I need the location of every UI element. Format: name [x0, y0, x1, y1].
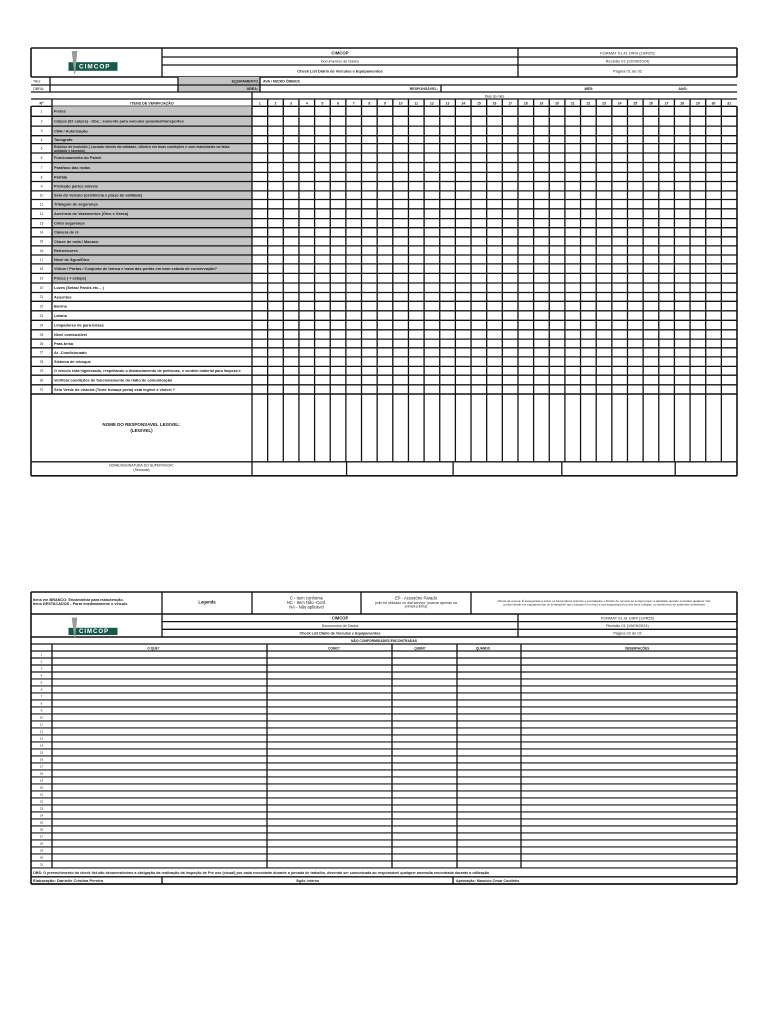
- svg-text:8: 8: [41, 702, 43, 706]
- svg-text:OBRA:: OBRA:: [33, 87, 44, 91]
- svg-text:18: 18: [40, 772, 44, 776]
- svg-text:21: 21: [571, 101, 575, 105]
- svg-text:24: 24: [40, 323, 44, 327]
- svg-text:1: 1: [41, 653, 43, 657]
- svg-text:13: 13: [40, 221, 44, 225]
- svg-text:20: 20: [40, 786, 44, 790]
- svg-text:Cinto segurança: Cinto segurança: [54, 221, 85, 226]
- svg-text:Buzina: Buzina: [54, 303, 68, 308]
- svg-text:30: 30: [712, 101, 716, 105]
- svg-text:ÁREA:: ÁREA:: [247, 86, 258, 91]
- svg-text:Documentos de Dados: Documentos de Dados: [321, 59, 360, 63]
- svg-text:15: 15: [40, 240, 44, 244]
- svg-text:4: 4: [41, 674, 43, 678]
- svg-text:Tacógrafo: Tacógrafo: [54, 137, 73, 142]
- svg-text:NA - Não aplicável: NA - Não aplicável: [289, 605, 324, 610]
- svg-text:MÊS:: MÊS:: [585, 86, 594, 91]
- svg-text:11: 11: [40, 202, 44, 206]
- svg-text:5: 5: [41, 681, 43, 685]
- svg-text:28: 28: [680, 101, 684, 105]
- svg-text:Chave de roda / Macaco: Chave de roda / Macaco: [54, 239, 99, 244]
- svg-text:CIMCOP: CIMCOP: [331, 51, 348, 56]
- svg-text:4: 4: [41, 138, 43, 142]
- svg-text:16: 16: [40, 758, 44, 762]
- svg-text:27: 27: [665, 101, 669, 105]
- svg-text:11: 11: [40, 723, 43, 727]
- svg-text:QUANDO: QUANDO: [476, 646, 491, 650]
- svg-text:ITENS DE VERIFICAÇÃO: ITENS DE VERIFICAÇÃO: [130, 100, 174, 105]
- svg-text:Sigilo: Interno: Sigilo: Interno: [296, 879, 319, 883]
- svg-text:Revisão 01 (19/09/2024): Revisão 01 (19/09/2024): [606, 623, 649, 628]
- svg-text:30: 30: [40, 378, 44, 382]
- svg-text:Para-brisa: Para-brisa: [54, 341, 74, 346]
- svg-text:28: 28: [40, 360, 44, 364]
- svg-text:Legenda: Legenda: [198, 600, 216, 605]
- svg-text:19: 19: [540, 101, 544, 105]
- svg-text:10: 10: [399, 101, 403, 105]
- svg-text:31: 31: [727, 101, 731, 105]
- svg-text:12: 12: [40, 212, 44, 216]
- svg-text:9: 9: [41, 709, 43, 713]
- svg-text:31: 31: [40, 863, 44, 867]
- svg-text:Aprovação: Mauricio Cesar Cout: Aprovação: Mauricio Cesar Coutinho: [456, 879, 520, 883]
- svg-text:AVA / MICRO ÔNIBUS: AVA / MICRO ÔNIBUS: [263, 79, 300, 84]
- svg-text:6: 6: [41, 156, 43, 160]
- svg-text:19: 19: [40, 779, 44, 783]
- svg-text:12: 12: [430, 101, 434, 105]
- svg-text:7: 7: [41, 166, 43, 170]
- svg-text:Página 01 de 02: Página 01 de 02: [613, 69, 643, 74]
- svg-text:CNH / Autorização: CNH / Autorização: [54, 128, 88, 133]
- svg-text:16: 16: [40, 249, 44, 253]
- svg-text:16: 16: [493, 101, 497, 105]
- svg-text:29: 29: [40, 369, 44, 373]
- svg-text:24: 24: [40, 814, 44, 818]
- svg-text:Nível de Água/Óleo: Nível de Água/Óleo: [54, 257, 90, 262]
- svg-text:3: 3: [41, 667, 43, 671]
- svg-text:5: 5: [321, 101, 323, 105]
- svg-text:Vidros / Portas / Conjunto de: Vidros / Portas / Conjunto de tranca e t…: [54, 266, 218, 271]
- svg-text:Nível combustível: Nível combustível: [54, 332, 87, 337]
- svg-text:7: 7: [353, 101, 355, 105]
- svg-text:13: 13: [40, 737, 44, 741]
- svg-text:25: 25: [40, 333, 44, 337]
- svg-text:20: 20: [40, 286, 44, 290]
- svg-text:2: 2: [41, 660, 43, 664]
- svg-text:Sistema de reboque: Sistema de reboque: [54, 359, 92, 364]
- svg-text:Itens DESTACADOS - Parar imedi: Itens DESTACADOS - Parar imediatamente o…: [33, 602, 128, 606]
- svg-text:15: 15: [40, 751, 44, 755]
- svg-text:8: 8: [41, 175, 43, 179]
- svg-text:Verificar condições de funcion: Verificar condições de funcionamento do …: [54, 377, 173, 382]
- svg-text:14: 14: [40, 231, 44, 235]
- svg-text:Check List Diário de Veículos: Check List Diário de Veículos e Equipame…: [300, 632, 381, 636]
- svg-text:3: 3: [41, 129, 43, 133]
- svg-text:9: 9: [41, 185, 43, 189]
- svg-text:7: 7: [41, 695, 43, 699]
- svg-text:23: 23: [40, 314, 44, 318]
- svg-text:Proteção partes móveis: Proteção partes móveis: [54, 184, 98, 189]
- svg-text:COMO?: COMO?: [328, 646, 340, 650]
- svg-text:O veículo está higienizado, re: O veículo está higienizado, respeitando …: [54, 369, 241, 373]
- svg-text:27: 27: [40, 351, 44, 355]
- svg-text:1: 1: [41, 110, 43, 114]
- svg-text:22: 22: [40, 304, 44, 308]
- svg-text:Retrovisores: Retrovisores: [54, 248, 78, 253]
- svg-text:TAG:: TAG:: [33, 79, 41, 83]
- svg-text:20: 20: [555, 101, 559, 105]
- svg-text:23: 23: [40, 807, 44, 811]
- svg-text:9: 9: [384, 101, 386, 105]
- svg-text:30: 30: [40, 856, 44, 860]
- svg-text:23: 23: [602, 101, 606, 105]
- svg-text:(LEGIVEL): (LEGIVEL): [130, 428, 153, 433]
- svg-text:26: 26: [649, 101, 653, 105]
- svg-text:OBS: O preenchimento do check: OBS: O preenchimento do check list não d…: [33, 871, 490, 875]
- svg-text:2: 2: [275, 101, 277, 105]
- svg-text:Selo Verde de vistoria (Teste: Selo Verde de vistoria (Teste fumaça pre…: [54, 387, 176, 392]
- svg-text:8: 8: [368, 101, 370, 105]
- svg-text:CIMCOP: CIMCOP: [79, 629, 109, 635]
- svg-text:FORMAT 01.41 DIR4 (19/R25): FORMAT 01.41 DIR4 (19/R25): [600, 51, 655, 56]
- svg-text:27: 27: [40, 835, 44, 839]
- svg-text:Freios: Freios: [54, 109, 66, 114]
- svg-text:1: 1: [259, 101, 261, 105]
- svg-text:EP - Acessório Parado: EP - Acessório Parado: [395, 596, 438, 601]
- svg-text:10: 10: [40, 716, 44, 720]
- svg-text:26: 26: [40, 342, 44, 346]
- svg-text:FORMAT 01.41 DIR4 (19/R25): FORMAT 01.41 DIR4 (19/R25): [601, 615, 655, 620]
- svg-text:17: 17: [40, 258, 44, 262]
- svg-text:28: 28: [40, 842, 44, 846]
- svg-text:ANO:: ANO:: [678, 87, 687, 91]
- svg-text:conformidade em equipamentos o: conformidade em equipamentos ou instalaç…: [503, 603, 705, 607]
- svg-text:Limpadores de para-brisas: Limpadores de para-brisas: [54, 322, 104, 327]
- svg-text:15: 15: [477, 101, 481, 105]
- svg-text:Elaboração: Danielle Cristina: Elaboração: Danielle Cristina Pereira: [33, 878, 104, 883]
- svg-text:14: 14: [40, 744, 44, 748]
- svg-text:Nº: Nº: [39, 101, 44, 105]
- svg-text:RESPONSÁVEL:: RESPONSÁVEL:: [410, 86, 438, 91]
- svg-text:21: 21: [40, 793, 44, 797]
- svg-text:Pneus ( + estepe): Pneus ( + estepe): [54, 276, 87, 281]
- svg-text:Funcionamento do Painel: Funcionamento do Painel: [54, 155, 101, 160]
- svg-text:5: 5: [41, 147, 43, 151]
- svg-text:12: 12: [40, 730, 44, 734]
- svg-text:primeira linha): primeira linha): [405, 605, 428, 609]
- svg-text:19: 19: [40, 277, 44, 281]
- svg-text:4: 4: [306, 101, 308, 105]
- svg-text:29: 29: [696, 101, 700, 105]
- svg-text:NÃO CONFORMIDADES ENCONTRADAS: NÃO CONFORMIDADES ENCONTRADAS: [351, 638, 418, 643]
- svg-text:18: 18: [40, 267, 44, 271]
- svg-text:Luzes (Setas/ Faróis etc... ): Luzes (Setas/ Faróis etc... ): [54, 285, 105, 290]
- svg-text:Dias do mês: Dias do mês: [485, 94, 505, 98]
- svg-text:22: 22: [40, 800, 44, 804]
- svg-text:Triângulo de segurança: Triângulo de segurança: [54, 202, 99, 207]
- svg-text:25: 25: [40, 821, 44, 825]
- svg-text:Partida: Partida: [54, 174, 68, 179]
- svg-text:Check List Diário de Veículos: Check List Diário de Veículos e Equipame…: [297, 69, 382, 74]
- svg-text:EQUIPAMENTO: EQUIPAMENTO: [232, 80, 259, 84]
- svg-text:25: 25: [633, 101, 637, 105]
- svg-text:31: 31: [40, 388, 44, 392]
- svg-text:17: 17: [508, 101, 512, 105]
- svg-text:Assentos: Assentos: [54, 294, 72, 299]
- svg-text:QUEM?: QUEM?: [414, 646, 426, 650]
- svg-text:2: 2: [41, 120, 43, 124]
- svg-text:(Semanal): (Semanal): [133, 468, 149, 472]
- svg-text:Ar -Condicionado: Ar -Condicionado: [54, 350, 87, 355]
- svg-text:NOME/ASSINATURA DO SUPERVISOR:: NOME/ASSINATURA DO SUPERVISOR:: [109, 464, 173, 468]
- svg-text:Página 02 de 02: Página 02 de 02: [613, 631, 641, 636]
- svg-text:O QUE?: O QUE?: [147, 646, 159, 650]
- svg-text:11: 11: [414, 101, 418, 105]
- svg-text:14: 14: [461, 101, 465, 105]
- svg-text:3: 3: [290, 101, 292, 105]
- svg-text:OBSERVAÇÕES: OBSERVAÇÕES: [625, 645, 650, 650]
- svg-text:Calços (02 calços) - Obs.: som: Calços (02 calços) - Obs.: somente para …: [54, 119, 184, 124]
- svg-text:24: 24: [618, 101, 622, 105]
- svg-text:Lataria: Lataria: [54, 313, 68, 318]
- svg-text:29: 29: [40, 849, 44, 853]
- svg-text:Câmera de ré: Câmera de ré: [54, 230, 79, 235]
- svg-text:Selo do Veículo (existência e: Selo do Veículo (existência e prazo de v…: [54, 193, 143, 198]
- svg-text:26: 26: [40, 828, 44, 832]
- svg-text:6: 6: [41, 688, 43, 692]
- svg-text:17: 17: [40, 765, 44, 769]
- svg-text:CIMCOP: CIMCOP: [332, 615, 349, 620]
- svg-text:18: 18: [524, 101, 528, 105]
- svg-text:Documentos de Dados: Documentos de Dados: [322, 624, 359, 628]
- svg-text:6: 6: [337, 101, 339, 105]
- svg-text:22: 22: [586, 101, 590, 105]
- svg-text:Revisão 01 (19/09/2024): Revisão 01 (19/09/2024): [606, 58, 650, 63]
- svg-text:10: 10: [40, 194, 44, 198]
- svg-text:Ausência de Vazamentos (Óleo e: Ausência de Vazamentos (Óleo e Graxa): [54, 211, 129, 216]
- svg-text:NOME DO RESPONSAVEL LEGIVEL:: NOME DO RESPONSAVEL LEGIVEL:: [102, 422, 181, 427]
- svg-text:21: 21: [40, 295, 44, 299]
- svg-text:Parafuso das rodas: Parafuso das rodas: [54, 165, 90, 170]
- svg-text:13: 13: [446, 101, 450, 105]
- svg-text:CIMCOP: CIMCOP: [79, 64, 111, 71]
